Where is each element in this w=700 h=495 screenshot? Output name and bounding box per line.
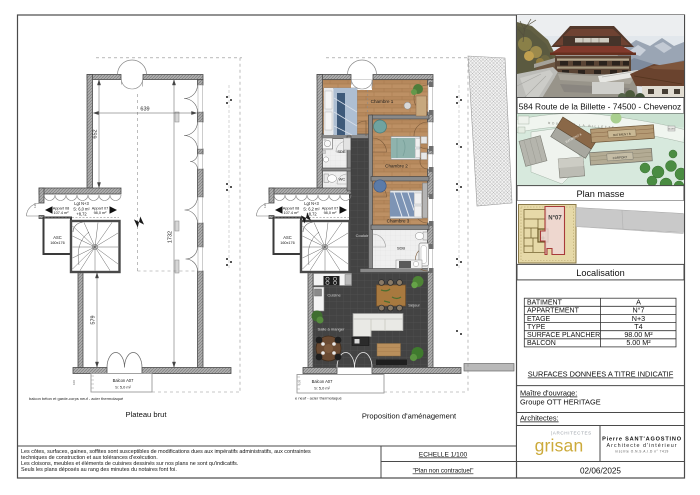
svg-text:Balcon A07: Balcon A07 <box>113 378 134 383</box>
svg-text:1732: 1732 <box>168 231 174 243</box>
svg-text:107.4 m²: 107.4 m² <box>54 211 70 215</box>
svg-text:ASC: ASC <box>283 235 291 240</box>
svg-text:126: 126 <box>33 203 37 208</box>
svg-text:SDE: SDE <box>337 149 346 154</box>
svg-text:Plateau brut: Plateau brut <box>126 410 168 419</box>
svg-text:Salle à manger: Salle à manger <box>318 327 346 332</box>
svg-text:02/06/2025: 02/06/2025 <box>580 467 621 476</box>
svg-text:Pierre SANT'AGOSTINO: Pierre SANT'AGOSTINO <box>602 437 682 443</box>
svg-text:126: 126 <box>263 203 267 208</box>
svg-text:Proposition d'aménagement: Proposition d'aménagement <box>362 412 457 421</box>
svg-text:Localisation: Localisation <box>576 268 625 278</box>
svg-text:Chambre 1: Chambre 1 <box>371 99 394 104</box>
svg-text:98,0 m²: 98,0 m² <box>324 211 338 215</box>
svg-text:APPARTEMENT: APPARTEMENT <box>527 308 580 315</box>
svg-text:ECHELLE 1/100: ECHELLE 1/100 <box>419 452 468 459</box>
svg-text:balcon béton et garde-corps ne: balcon béton et garde-corps neuf - acier… <box>29 396 124 401</box>
svg-text:inscrite O.N.S.A.I.D n° 7419: inscrite O.N.S.A.I.D n° 7419 <box>615 450 669 454</box>
svg-text:grisan: grisan <box>535 436 584 456</box>
svg-text:Seuls les plans déposés au ran: Seuls les plans déposés au rang des minu… <box>21 467 177 473</box>
svg-text:Architectes:: Architectes: <box>520 414 559 423</box>
svg-text:WC: WC <box>339 177 346 182</box>
svg-text:100: 100 <box>298 380 302 385</box>
svg-text:Plan masse: Plan masse <box>576 189 624 199</box>
svg-text:+8,72: +8,72 <box>76 212 87 217</box>
svg-text:160x176: 160x176 <box>280 241 295 245</box>
svg-text:Maître d'ouvrage:: Maître d'ouvrage: <box>520 389 577 398</box>
svg-text:Lgt N+3: Lgt N+3 <box>74 201 89 206</box>
svg-text:107.4 m²: 107.4 m² <box>284 211 300 215</box>
svg-text:e neuf - acier thermolaqué: e neuf - acier thermolaqué <box>295 396 342 401</box>
svg-text:160x176: 160x176 <box>50 241 65 245</box>
svg-text:Chambre 2: Chambre 2 <box>385 164 408 169</box>
svg-text:100: 100 <box>72 380 76 385</box>
svg-text:639: 639 <box>140 107 149 113</box>
svg-text:N°07: N°07 <box>548 216 562 222</box>
svg-text:ETAGE: ETAGE <box>527 316 551 323</box>
svg-text:Groupe OTT HERITAGE: Groupe OTT HERITAGE <box>520 398 601 407</box>
svg-text:S: 5,0 m²: S: 5,0 m² <box>314 386 330 391</box>
svg-text:BALCON: BALCON <box>527 340 556 347</box>
svg-text:Balcon A07: Balcon A07 <box>312 379 333 384</box>
svg-text:S: 5,0 m²: S: 5,0 m² <box>115 385 131 390</box>
svg-text:Lgt N+3: Lgt N+3 <box>304 201 319 206</box>
svg-text:Séjour: Séjour <box>408 303 420 308</box>
svg-text:Cuisine: Cuisine <box>327 293 341 298</box>
svg-text:ACCES: ACCES <box>668 128 675 131</box>
svg-text:98,0 m²: 98,0 m² <box>94 211 108 215</box>
svg-text:5.00 M²: 5.00 M² <box>626 338 651 347</box>
svg-text:TYPE: TYPE <box>527 324 546 331</box>
svg-text:Chambre 3: Chambre 3 <box>387 219 410 224</box>
svg-text:ASC: ASC <box>53 235 61 240</box>
svg-text:579: 579 <box>91 315 97 324</box>
svg-text:SURFACES DONNEES A TITRE INDIC: SURFACES DONNEES A TITRE INDICATIF <box>528 370 674 379</box>
svg-text:Couloir: Couloir <box>356 233 369 238</box>
svg-text:SDB: SDB <box>397 246 406 251</box>
svg-text:652: 652 <box>93 129 99 138</box>
svg-text:584 Route de la Billette - 745: 584 Route de la Billette - 74500 - Cheve… <box>519 102 682 112</box>
svg-text:"Plan non contractuel": "Plan non contractuel" <box>413 468 474 475</box>
svg-text:BATIMENT: BATIMENT <box>527 300 563 307</box>
svg-text:SURFACE PLANCHER: SURFACE PLANCHER <box>527 332 600 339</box>
svg-text:Architecte d'intérieur: Architecte d'intérieur <box>607 443 678 449</box>
